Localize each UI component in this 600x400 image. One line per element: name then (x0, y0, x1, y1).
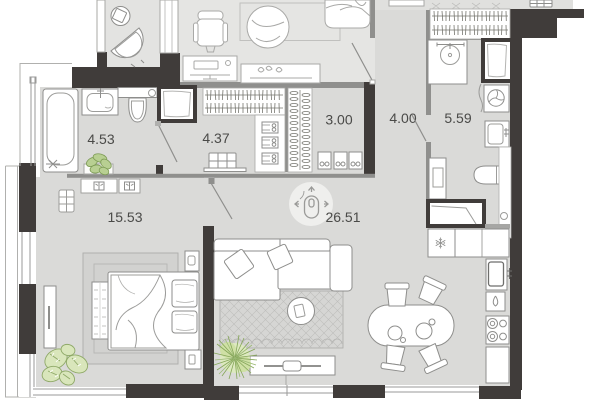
svg-text:4.00: 4.00 (389, 110, 416, 126)
svg-text:3.00: 3.00 (325, 112, 352, 128)
svg-text:5.59: 5.59 (444, 110, 471, 126)
svg-text:26.51: 26.51 (325, 209, 360, 225)
svg-text:4.37: 4.37 (202, 130, 229, 146)
svg-text:4.53: 4.53 (87, 131, 114, 147)
svg-text:15.53: 15.53 (107, 209, 142, 225)
